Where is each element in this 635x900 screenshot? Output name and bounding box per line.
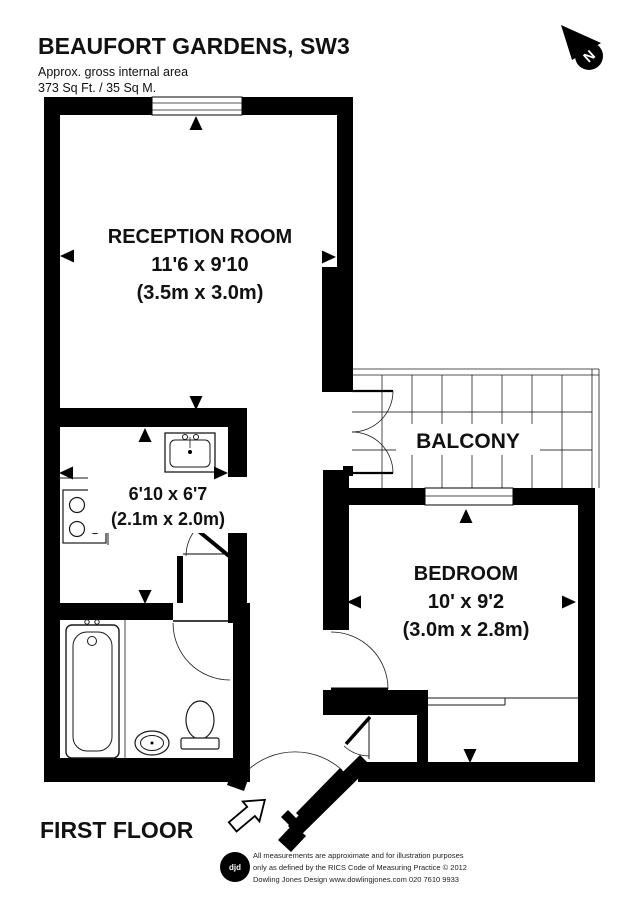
north-compass-icon: N (561, 25, 603, 70)
balcony-label: BALCONY (416, 430, 520, 453)
disclaimer-line: All measurements are approximate and for… (253, 851, 464, 860)
wall-segment (44, 758, 250, 782)
hall-door (344, 717, 370, 759)
reception-size-imperial: 11'6 x 9'10 (151, 254, 248, 276)
page-title: BEAUFORT GARDENS, SW3 (38, 33, 350, 59)
bedroom-door (331, 632, 388, 689)
wall-segment (44, 408, 247, 427)
wall-segment (242, 97, 353, 115)
wall-segment (233, 620, 250, 772)
wall-segment (177, 556, 183, 603)
arrow-down-icon (464, 749, 477, 763)
floor-label: FIRST FLOOR (40, 817, 194, 843)
wall-segment (343, 466, 353, 476)
wardrobe (428, 698, 578, 705)
disclaimer-line: only as defined by the RICS Code of Meas… (253, 863, 467, 872)
arrow-right-icon (322, 251, 336, 264)
arrow-up-icon (139, 428, 152, 442)
bedroom-label: BEDROOM (414, 563, 518, 585)
disclaimer-line: Dowling Jones Design www.dowlingjones.co… (253, 875, 459, 884)
arrow-left-icon (347, 596, 361, 609)
kitchen-size-metric: (2.1m x 2.0m) (111, 509, 225, 529)
toilet-icon (181, 701, 219, 749)
disclaimer: All measurements are approximate and for… (253, 851, 467, 884)
wall-segment (44, 97, 60, 782)
sink-icon (165, 433, 215, 472)
wall-segment (417, 715, 428, 765)
bathtub-icon (66, 620, 119, 758)
wall-segment (323, 488, 425, 505)
wall-segment (230, 603, 250, 620)
arrow-down-icon (190, 396, 203, 410)
bedroom-size-imperial: 10' x 9'2 (428, 591, 504, 613)
wall-segment (358, 762, 595, 782)
bedroom-size-metric: (3.0m x 2.8m) (403, 619, 530, 641)
wall-segment (578, 488, 595, 782)
logo-text: djd (229, 863, 241, 872)
arrow-right-icon (562, 596, 576, 609)
arrow-up-icon (190, 116, 203, 130)
entrance-angled-wall (288, 755, 371, 837)
wall-segment (337, 97, 353, 269)
bathroom (66, 620, 230, 758)
designer-logo: djd (220, 852, 250, 882)
bathroom-door (173, 621, 230, 680)
kitchen-size-imperial: 6'10 x 6'7 (129, 484, 208, 504)
balcony: BALCONY (352, 369, 599, 488)
area-subtitle: Approx. gross internal area (38, 65, 188, 79)
bedroom-window (425, 488, 513, 505)
walls (44, 97, 595, 852)
arrow-left-icon (60, 250, 74, 263)
entrance-arrow-icon (224, 790, 273, 837)
french-doors (352, 391, 393, 473)
arrow-down-icon (139, 590, 152, 604)
reception-window (152, 97, 242, 115)
wall-segment (322, 267, 353, 392)
reception-label: RECEPTION ROOM (108, 226, 292, 248)
reception-size-metric: (3.5m x 3.0m) (137, 282, 264, 304)
wall-segment (44, 603, 173, 620)
kitchen-door (183, 529, 229, 556)
arrow-up-icon (460, 509, 473, 523)
floorplan-canvas: BEAUFORT GARDENS, SW3 Approx. gross inte… (0, 0, 635, 900)
wall-segment (44, 97, 152, 115)
area-value: 373 Sq Ft. / 35 Sq M. (38, 81, 156, 95)
wall-segment (323, 690, 428, 715)
washbasin-icon (135, 731, 169, 755)
